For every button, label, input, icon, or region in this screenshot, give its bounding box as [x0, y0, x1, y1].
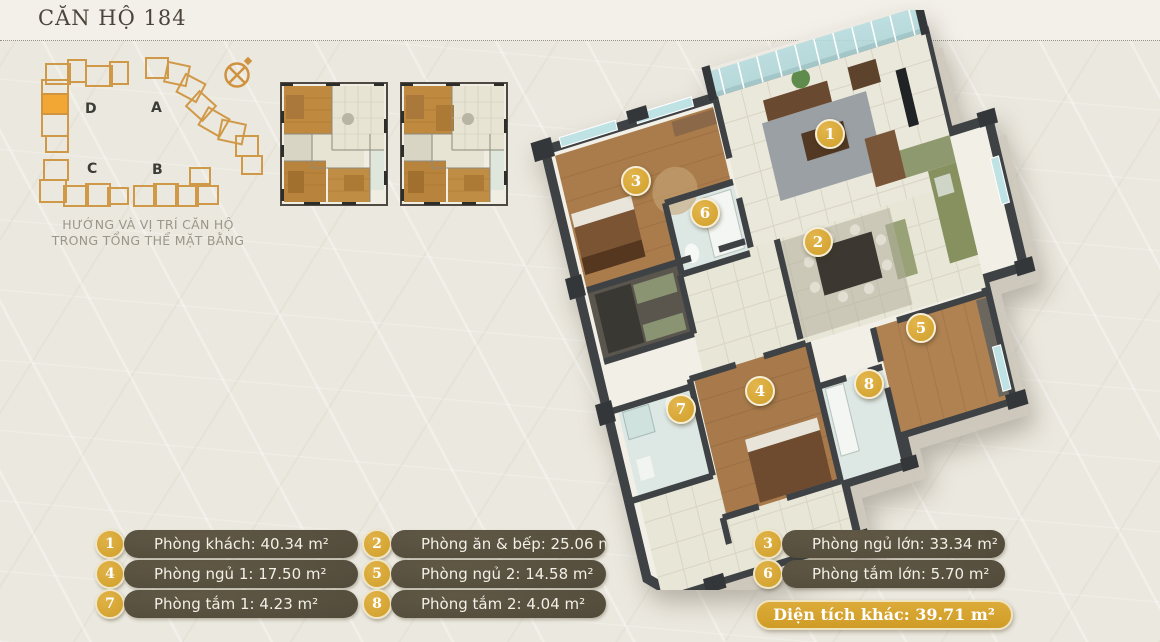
other-area-badge: Diện tích khác: 39.71 m² [755, 600, 1013, 630]
site-plan-caption-line2: TRONG TỔNG THỂ MẶT BẰNG [52, 233, 245, 248]
legend-num-3: 3 [753, 529, 783, 559]
legend-num-2: 2 [362, 529, 392, 559]
legend-num-8: 8 [362, 589, 392, 619]
legend-label-6: Phòng tắm lớn: 5.70 m² [782, 560, 1005, 588]
legend-label-8: Phòng tắm 2: 4.04 m² [391, 590, 606, 618]
legend-num-5: 5 [362, 559, 392, 589]
page-title: CĂN HỘ 184 [38, 6, 187, 30]
building-d-label: D [85, 101, 97, 117]
site-plan-caption-line1: HƯỚNG VÀ VỊ TRÍ CĂN HỘ [62, 217, 233, 232]
building-c-outline [40, 160, 128, 206]
room-marker-2: 2 [803, 227, 833, 257]
building-a-outline [146, 58, 262, 174]
floorplan-thumbnail-1[interactable] [278, 75, 392, 213]
legend-label-1: Phòng khách: 40.34 m² [124, 530, 358, 558]
floorplan-thumbnail-2[interactable] [398, 75, 512, 213]
legend-label-4: Phòng ngủ 1: 17.50 m² [124, 560, 358, 588]
compass-icon [226, 57, 253, 87]
room-marker-5: 5 [906, 313, 936, 343]
room-marker-4: 4 [745, 376, 775, 406]
building-c-label: C [87, 161, 97, 177]
highlighted-unit [42, 94, 68, 114]
apartment-floorplan-page: CĂN HỘ 184 [0, 0, 1160, 642]
room-marker-6: 6 [690, 198, 720, 228]
legend-label-5: Phòng ngủ 2: 14.58 m² [391, 560, 606, 588]
room-marker-7: 7 [666, 394, 696, 424]
legend-num-4: 4 [95, 559, 125, 589]
legend-label-2: Phòng ăn & bếp: 25.06 m² [391, 530, 606, 558]
building-b-label: B [152, 162, 163, 178]
room-marker-1: 1 [815, 119, 845, 149]
site-plan-caption: HƯỚNG VÀ VỊ TRÍ CĂN HỘ TRONG TỔNG THỂ MẶ… [20, 217, 276, 250]
legend-num-6: 6 [753, 559, 783, 589]
legend-num-1: 1 [95, 529, 125, 559]
site-location-diagram: D A C B [30, 54, 270, 218]
legend-num-7: 7 [95, 589, 125, 619]
building-a-label: A [151, 100, 162, 116]
building-b-outline [134, 168, 218, 206]
room-marker-3: 3 [621, 166, 651, 196]
building-labels: D A C B [85, 100, 163, 178]
floorplan-3d-render [500, 10, 1160, 590]
room-marker-8: 8 [854, 369, 884, 399]
legend-label-7: Phòng tắm 1: 4.23 m² [124, 590, 358, 618]
legend-label-3: Phòng ngủ lớn: 33.34 m² [782, 530, 1005, 558]
